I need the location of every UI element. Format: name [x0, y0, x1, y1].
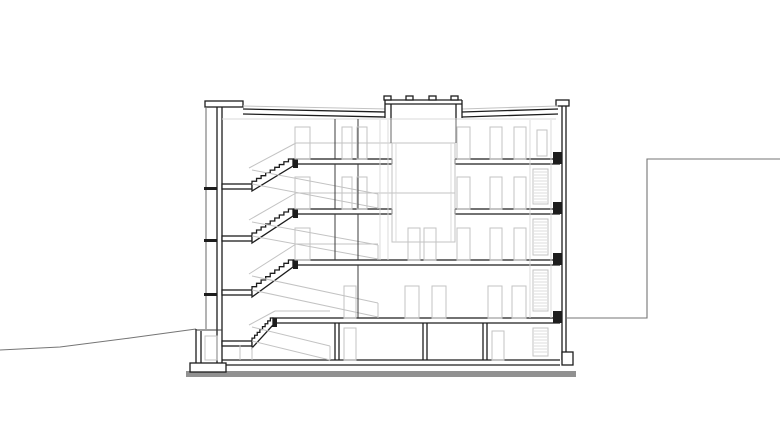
stair-flight [252, 159, 293, 191]
door-row-ground-door [344, 286, 356, 318]
roof-finish-left [243, 106, 385, 109]
door-row-f3-door [490, 228, 502, 260]
drawing-canvas [0, 0, 780, 448]
wall-slab-nub [553, 202, 562, 214]
door-row-ground-door [432, 286, 446, 318]
door-row-f4-door [490, 177, 502, 209]
roof-finish-right [462, 106, 558, 109]
wall-slab-nub [553, 311, 562, 323]
door-row-ground-door [512, 286, 526, 318]
door-row-f3-door [408, 228, 420, 260]
far-flight [252, 236, 378, 259]
void-volume [392, 143, 455, 193]
stair-landing [222, 236, 252, 241]
basement-door [492, 331, 504, 360]
neighbor-building-outline [567, 159, 780, 318]
far-flight-railing [252, 170, 378, 194]
far-flight-railing [252, 327, 330, 346]
door-row-ground-door [405, 286, 419, 318]
roof-slab-left [243, 114, 385, 117]
stair-landing [222, 290, 252, 295]
stair-nosing-block [293, 159, 298, 168]
door-row-top-door [457, 127, 470, 159]
roof-paver-block [384, 96, 391, 100]
right-parapet-cap [556, 100, 569, 106]
building-section-drawing [0, 0, 780, 448]
door-row-ground-door [488, 286, 502, 318]
door-row-top-door [490, 127, 502, 159]
roof-slab-right [462, 109, 558, 112]
wall-slab-nub [553, 152, 562, 164]
door-row-top-door [514, 127, 526, 159]
roof-slab-left [243, 109, 385, 112]
stair-nosing-block [293, 209, 298, 218]
basement-door [344, 328, 356, 360]
roof-paver-block [451, 96, 458, 100]
ground-line-left [0, 329, 196, 350]
door-row-f4-door [457, 177, 470, 209]
far-flight-railing [252, 222, 378, 245]
left-parapet-cap [205, 101, 243, 107]
roof-paver-block [406, 96, 413, 100]
far-flight [252, 341, 330, 360]
wall-slab-nub [553, 253, 562, 265]
window-sill [204, 187, 217, 190]
roof-paver-block [429, 96, 436, 100]
far-flight [252, 184, 378, 208]
far-flight-railing [252, 276, 378, 303]
lean-concrete-band [186, 371, 576, 377]
window-sill [204, 293, 217, 296]
lightwell-window [205, 336, 217, 360]
door-row-f3-door [457, 228, 470, 260]
window-small [537, 130, 547, 156]
lightwell-footing [190, 363, 226, 372]
door-row-f3-door [514, 228, 526, 260]
stair-nosing-block [293, 260, 298, 269]
window-sill [204, 239, 217, 242]
stair-landing [222, 341, 252, 346]
door-row-f4-door [514, 177, 526, 209]
roof-slab-right [462, 114, 558, 117]
door-row-f3-door [424, 228, 436, 260]
right-wall-base [562, 352, 573, 365]
stair-landing [222, 184, 252, 189]
